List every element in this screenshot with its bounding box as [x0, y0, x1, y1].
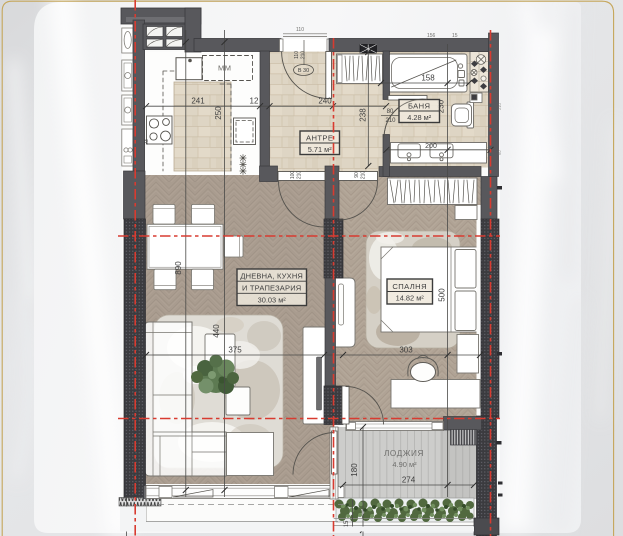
svg-text:ДНЕВНА, КУХНЯ: ДНЕВНА, КУХНЯ	[240, 271, 303, 280]
svg-text:4.28 м²: 4.28 м²	[407, 113, 432, 122]
svg-text:100: 100	[290, 171, 296, 180]
svg-text:500: 500	[438, 288, 447, 302]
svg-text:12: 12	[250, 97, 259, 106]
svg-text:23: 23	[144, 139, 150, 145]
svg-text:30.03 м²: 30.03 м²	[258, 295, 287, 304]
svg-text:241: 241	[191, 97, 205, 106]
svg-text:5.71 м²: 5.71 м²	[308, 145, 333, 154]
svg-text:60: 60	[497, 150, 502, 155]
svg-text:210: 210	[361, 171, 367, 180]
svg-text:90: 90	[354, 172, 360, 178]
svg-text:210: 210	[301, 51, 307, 60]
svg-text:АНТРЕ: АНТРЕ	[306, 134, 333, 143]
svg-text:4.90 м²: 4.90 м²	[392, 460, 417, 469]
svg-text:180: 180	[350, 463, 359, 477]
svg-text:15: 15	[344, 520, 350, 527]
svg-text:156: 156	[427, 33, 436, 39]
svg-text:240: 240	[318, 97, 332, 106]
svg-text:158: 158	[421, 74, 435, 83]
svg-text:375: 375	[228, 346, 242, 355]
svg-text:ЛОДЖИЯ: ЛОДЖИЯ	[384, 449, 424, 458]
svg-text:БАНЯ: БАНЯ	[408, 102, 430, 111]
svg-text:110: 110	[294, 51, 300, 59]
svg-text:СПАЛНЯ: СПАЛНЯ	[392, 282, 427, 291]
svg-text:И ТРАПЕЗАРИЯ: И ТРАПЕЗАРИЯ	[242, 284, 301, 293]
svg-text:250: 250	[214, 106, 223, 120]
svg-text:210: 210	[497, 103, 502, 110]
svg-text:303: 303	[399, 346, 413, 355]
svg-text:В 30: В 30	[298, 68, 309, 74]
svg-text:238: 238	[359, 108, 368, 122]
svg-text:80: 80	[387, 109, 394, 115]
svg-text:14.82 м²: 14.82 м²	[396, 294, 425, 303]
svg-text:110: 110	[296, 27, 304, 33]
svg-text:440: 440	[212, 324, 221, 338]
svg-text:274: 274	[402, 476, 416, 485]
svg-text:200: 200	[425, 143, 437, 150]
svg-text:890: 890	[174, 261, 183, 275]
svg-text:ММ: ММ	[218, 64, 232, 73]
svg-text:15: 15	[452, 33, 458, 39]
svg-text:210: 210	[297, 171, 303, 180]
